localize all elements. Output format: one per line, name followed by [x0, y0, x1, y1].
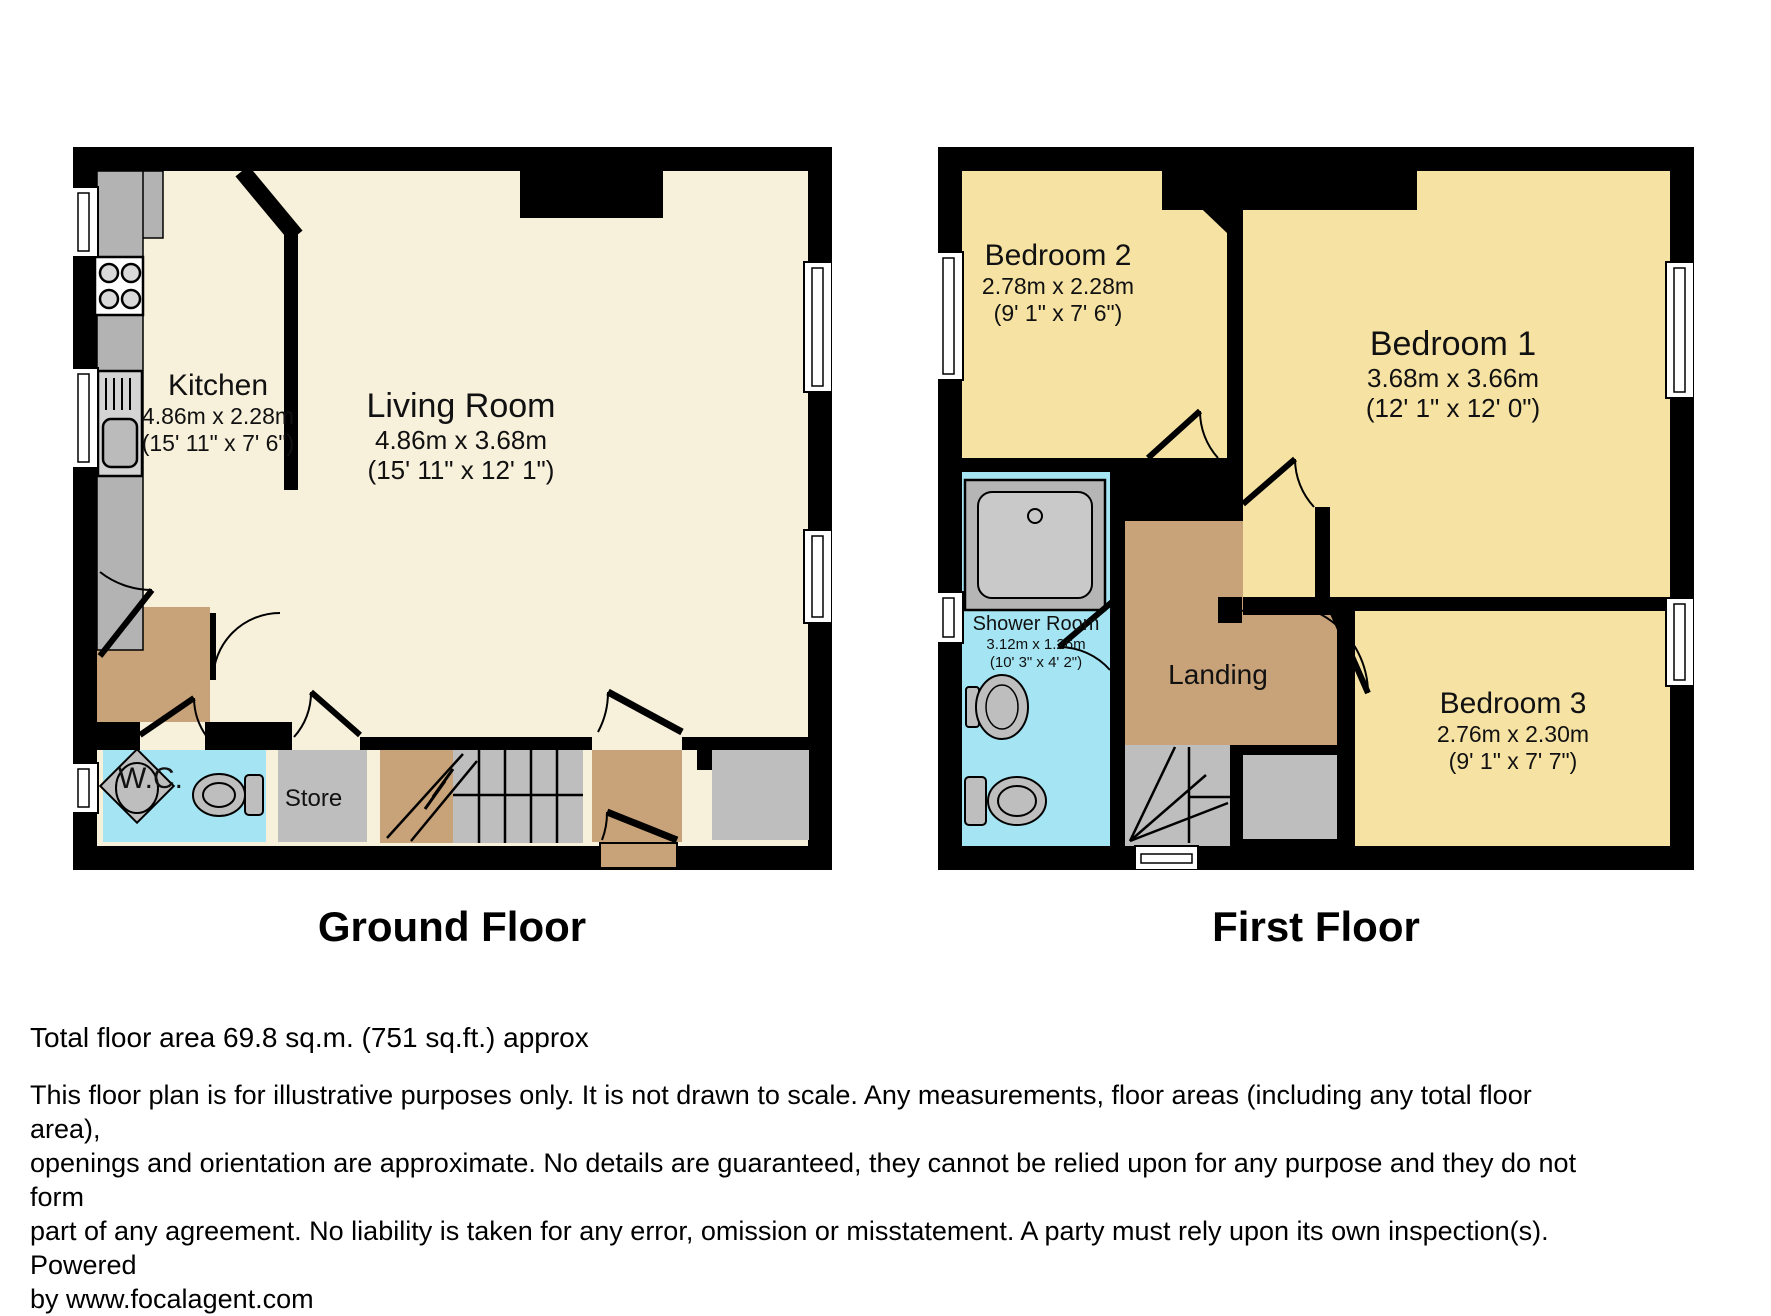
bedroom1-name: Bedroom 1 — [1328, 325, 1578, 363]
first-floor-plan: Bedroom 2 2.78m x 2.28m (9' 1" x 7' 6") … — [938, 147, 1694, 870]
kitchen-dim-metric: 4.86m x 2.28m — [113, 403, 323, 430]
kitchen-dim-imperial: (15' 11" x 7' 6") — [113, 430, 323, 457]
room-label-bedroom1: Bedroom 1 3.68m x 3.66m (12' 1" x 12' 0"… — [1328, 325, 1578, 423]
first-floor-title: First Floor — [1066, 903, 1566, 951]
room-label-kitchen: Kitchen 4.86m x 2.28m (15' 11" x 7' 6") — [113, 369, 323, 457]
hob-icon — [95, 257, 143, 315]
shower-room-dim-imperial: (10' 3" x 4' 2") — [962, 654, 1110, 672]
disclaimer-line-4: by www.focalagent.com — [30, 1282, 1590, 1316]
ground-floor-title: Ground Floor — [202, 903, 702, 951]
bedroom2-name: Bedroom 2 — [953, 239, 1163, 273]
living-room-dim-metric: 4.86m x 3.68m — [331, 425, 591, 455]
shower-tray-icon — [965, 480, 1105, 610]
room-label-store: Store — [256, 785, 371, 813]
wc-name: W.C. — [103, 762, 198, 796]
disclaimer-line-3: part of any agreement. No liability is t… — [30, 1214, 1590, 1282]
living-room-dim-imperial: (15' 11" x 12' 1") — [331, 455, 591, 485]
bedroom2-dim-imperial: (9' 1" x 7' 6") — [953, 300, 1163, 327]
bedroom3-name: Bedroom 3 — [1388, 687, 1638, 721]
room-label-bedroom2: Bedroom 2 2.78m x 2.28m (9' 1" x 7' 6") — [953, 239, 1163, 327]
toilet-icon — [965, 777, 1046, 825]
bedroom1-dim-metric: 3.68m x 3.66m — [1328, 363, 1578, 393]
shower-room-dim-metric: 3.12m x 1.26m — [962, 636, 1110, 654]
porch — [600, 843, 677, 868]
bedroom3-dim-imperial: (9' 1" x 7' 7") — [1388, 748, 1638, 775]
shower-room-name: Shower Room — [962, 613, 1110, 636]
disclaimer-line-1: This floor plan is for illustrative purp… — [30, 1078, 1590, 1146]
room-label-living-room: Living Room 4.86m x 3.68m (15' 11" x 12'… — [331, 387, 591, 485]
living-room-name: Living Room — [331, 387, 591, 425]
store-name: Store — [256, 785, 371, 813]
room-label-landing: Landing — [1123, 659, 1313, 691]
kitchen-name: Kitchen — [113, 369, 323, 403]
bedroom1-dim-imperial: (12' 1" x 12' 0") — [1328, 393, 1578, 423]
bedroom2-dim-metric: 2.78m x 2.28m — [953, 273, 1163, 300]
landing-name: Landing — [1123, 659, 1313, 691]
bedroom3-dim-metric: 2.76m x 2.30m — [1388, 721, 1638, 748]
room-label-shower-room: Shower Room 3.12m x 1.26m (10' 3" x 4' 2… — [962, 613, 1110, 672]
disclaimer-text: This floor plan is for illustrative purp… — [30, 1078, 1590, 1316]
total-floor-area: Total floor area 69.8 sq.m. (751 sq.ft.)… — [30, 1022, 589, 1054]
room-label-bedroom3: Bedroom 3 2.76m x 2.30m (9' 1" x 7' 7") — [1388, 687, 1638, 775]
toilet-icon — [193, 774, 263, 816]
ground-floor-plan: Kitchen 4.86m x 2.28m (15' 11" x 7' 6") … — [73, 147, 832, 870]
room-label-wc: W.C. — [103, 762, 198, 796]
disclaimer-line-2: openings and orientation are approximate… — [30, 1146, 1590, 1214]
